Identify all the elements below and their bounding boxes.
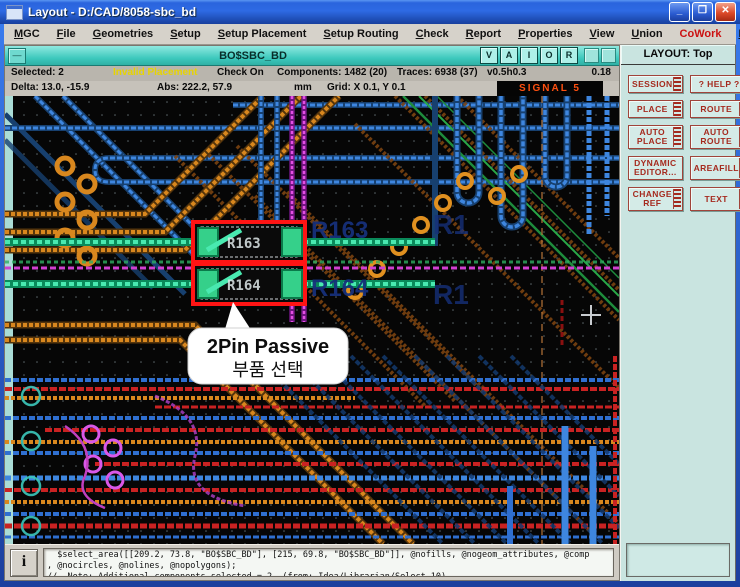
component-label-r164: R164 [227,278,261,294]
view-button-a[interactable]: A [500,47,518,64]
console-line-3: // Note: Additional components selected … [47,572,610,577]
minimize-button[interactable]: _ [669,2,690,22]
check-state: Check On [217,67,264,78]
help-button[interactable]: ? HELP ? [690,75,740,93]
pcb-canvas[interactable]: R163 R164 R163 R164 R1 R1 [5,96,619,544]
areafill-button[interactable]: AREAFILL [690,156,740,180]
menu-setup-placement[interactable]: Setup Placement [218,28,307,40]
callout-title: 2Pin Passive [207,336,329,358]
view-button-v[interactable]: V [480,47,498,64]
menu-union[interactable]: Union [631,28,662,40]
menu-setup[interactable]: Setup [170,28,201,40]
menu-stack-icon [673,127,681,147]
traces-count: Traces: 6938 (37) [397,67,478,78]
menu-bar: MGC File Geometries Setup Setup Placemen… [4,24,736,45]
refdes-neighbor-top: R1 [433,209,469,240]
palette-footer-box [626,543,730,577]
console-log[interactable]: $select_area([[209.2, 73.8, "BO$SBC_BD"]… [43,548,614,577]
menu-properties[interactable]: Properties [518,28,572,40]
delta-coords: Delta: 13.0, -15.9 [11,82,89,93]
change-ref-button[interactable]: CHANGE REF [628,187,683,211]
menu-geometries[interactable]: Geometries [93,28,154,40]
subwindow-title-bar: — BO$SBC_BD V A I O R [5,46,619,66]
place-label: PLACE [637,105,668,114]
menu-check[interactable]: Check [416,28,449,40]
status-row-2: Delta: 13.0, -15.9 Abs: 222.2, 57.9 mm G… [5,81,619,96]
grid-setting: Grid: X 0.1, Y 0.1 [327,82,406,93]
session-button[interactable]: SESSION [628,75,683,93]
info-button[interactable]: i [10,549,38,577]
selected-count: Selected: 2 [11,67,64,78]
place-button[interactable]: PLACE [628,100,683,118]
track-width: 0.18 [592,67,611,78]
app-icon [6,5,23,20]
auto-route-label: AUTO ROUTE [700,128,732,146]
route-label: ROUTE [700,105,732,114]
menu-stack-icon [673,102,681,116]
active-layer-indicator[interactable]: SIGNAL 5 [497,81,603,96]
menu-file[interactable]: File [57,28,76,40]
dynamic-editor-button[interactable]: DYNAMIC EDITOR... [628,156,683,180]
message-console: i $select_area([[209.2, 73.8, "BO$SBC_BD… [5,544,619,580]
placement-warning: Invalid Placement [113,67,197,78]
menu-setup-routing[interactable]: Setup Routing [323,28,398,40]
menu-stack-icon [673,189,681,209]
console-line-1: $select_area([[209.2, 73.8, "BO$SBC_BD"]… [47,550,610,561]
menu-cowork[interactable]: CoWork [680,28,722,40]
view-button-r[interactable]: R [560,47,578,64]
change-ref-label: CHANGE REF [633,190,672,208]
subwindow-menu-button[interactable]: — [8,48,26,64]
via-size: v0.5h0.3 [487,67,526,78]
route-button[interactable]: ROUTE [690,100,740,118]
command-palette: LAYOUT: Top SESSION ? HELP ? PLACE ROUTE… [620,45,736,581]
status-row-1: Selected: 2 Invalid Placement Check On C… [5,66,619,82]
component-label-r163: R163 [227,236,261,252]
refdes-r164: R164 [311,275,369,302]
refdes-neighbor-bottom: R1 [433,279,469,310]
menu-stack-icon [673,77,681,91]
design-window: — BO$SBC_BD V A I O R Selected: 2 Invali… [4,45,620,581]
palette-header: LAYOUT: Top [621,45,735,65]
auto-place-button[interactable]: AUTO PLACE [628,125,683,149]
menu-view[interactable]: View [590,28,615,40]
areafill-label: AREAFILL [694,164,739,173]
callout-subtitle: 부품 선택 [232,360,303,380]
view-button-o[interactable]: O [540,47,558,64]
session-label: SESSION [632,80,673,89]
maximize-button[interactable]: ❐ [692,2,713,22]
auto-place-label: AUTO PLACE [637,128,668,146]
selected-component-r164[interactable]: R164 [193,264,305,304]
selected-component-r163[interactable]: R163 [193,222,305,262]
window-frame: Layout - D:/CAD/8058-sbc_bd _ ❐ ✕ MGC Fi… [0,0,740,587]
refdes-r163: R163 [311,217,368,244]
text-label: TEXT [705,195,728,204]
components-count: Components: 1482 (20) [277,67,387,78]
window-title: Layout - D:/CAD/8058-sbc_bd [28,5,669,19]
dynamic-editor-label: DYNAMIC EDITOR... [634,159,677,177]
subwindow-maximize-button[interactable] [601,48,616,63]
view-button-i[interactable]: I [520,47,538,64]
pcb-canvas-area[interactable]: R163 R164 R163 R164 R1 R1 [5,96,619,544]
board-name: BO$SBC_BD [26,50,480,62]
text-button[interactable]: TEXT [690,187,740,211]
help-label: ? HELP ? [699,80,740,89]
menu-report[interactable]: Report [466,28,501,40]
close-button[interactable]: ✕ [715,2,736,22]
console-line-2: , @nocircles, @nolines, @nopolygons); [47,561,610,572]
auto-route-button[interactable]: AUTO ROUTE [690,125,740,149]
units-label: mm [294,82,312,93]
subwindow-restore-button[interactable] [584,48,599,63]
menu-mgc[interactable]: MGC [14,28,40,40]
title-bar: Layout - D:/CAD/8058-sbc_bd _ ❐ ✕ [0,0,740,24]
abs-coords: Abs: 222.2, 57.9 [157,82,232,93]
